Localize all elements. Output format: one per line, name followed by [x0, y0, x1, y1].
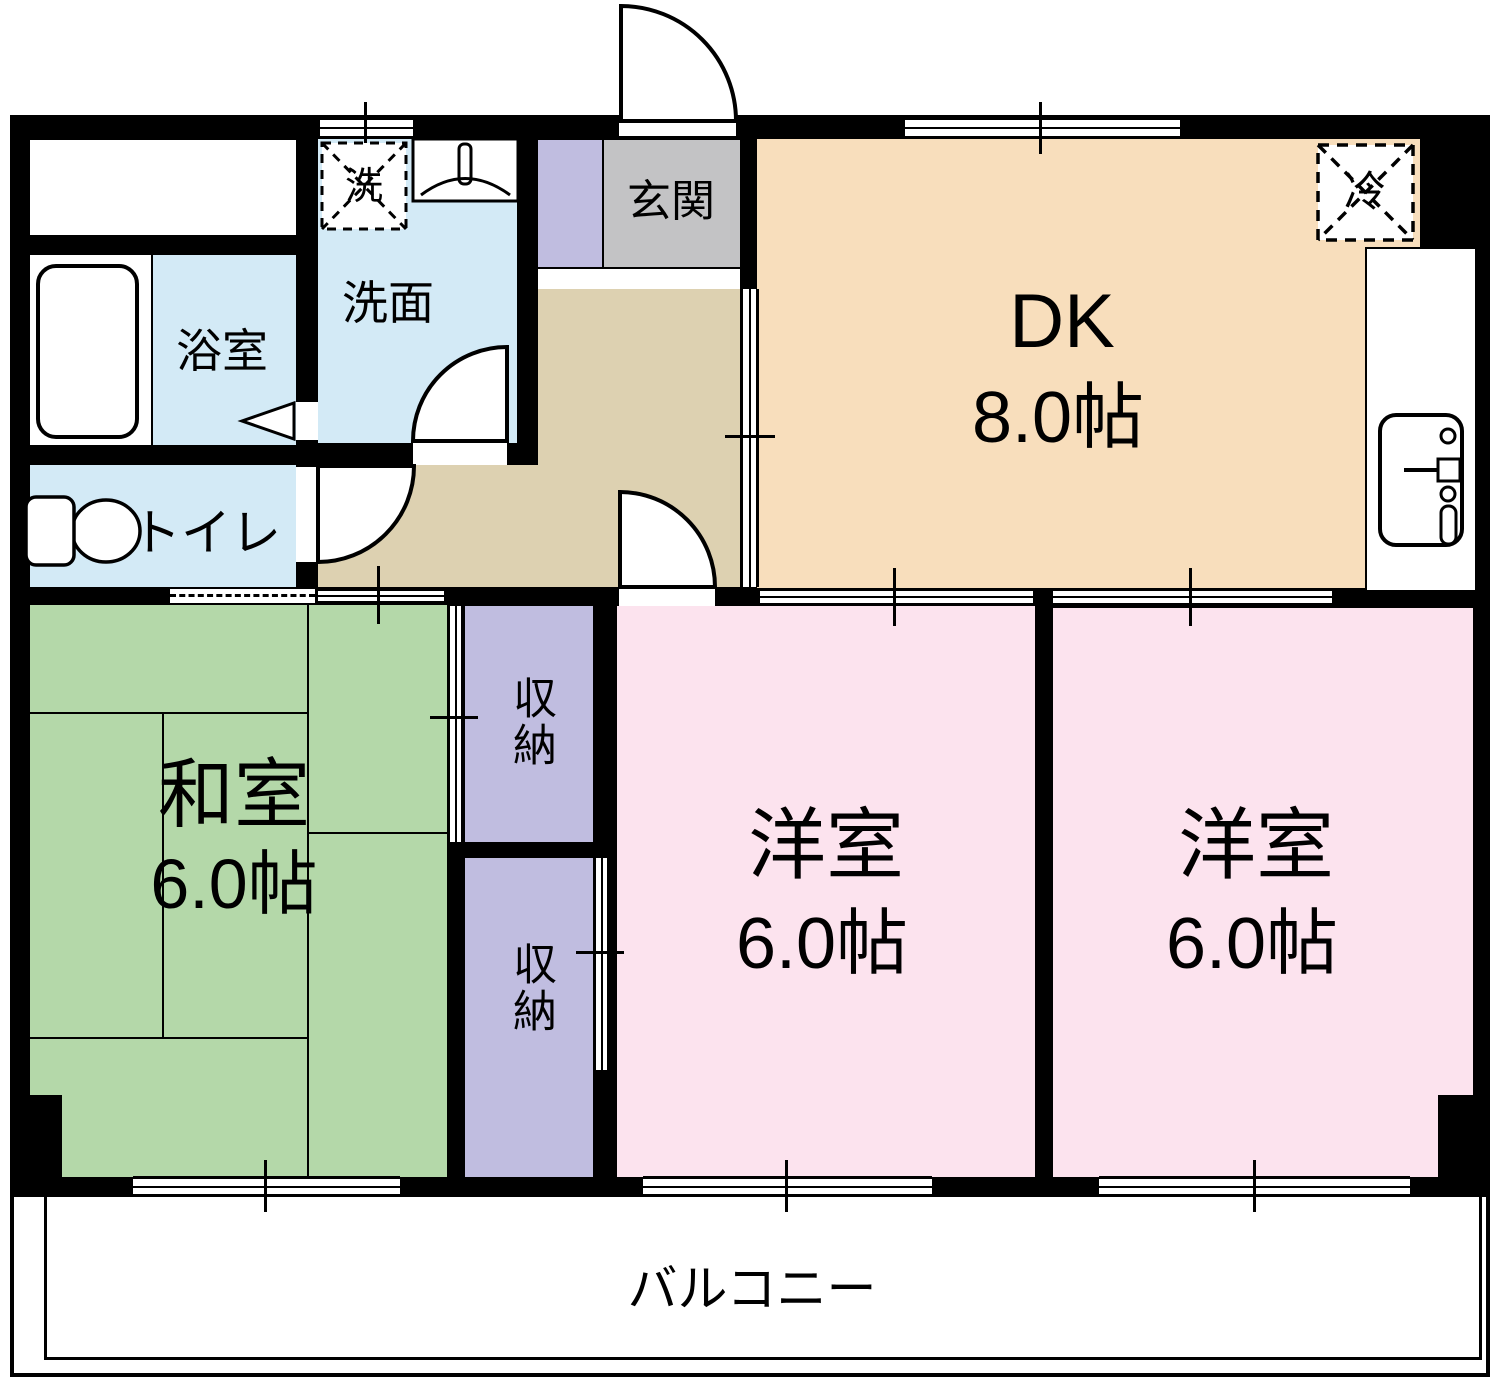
label-bath: 浴室 [176, 328, 268, 374]
label-dk-size: 8.0帖 [972, 382, 1144, 454]
floor-plan: 浴室 洗面 トイレ 玄関 洗 冷 DK 8.0帖 和室 6.0帖 洋室 6.0帖… [0, 0, 1500, 1380]
label-washer: 洗 [345, 168, 383, 206]
fixtures-layer [0, 0, 1500, 1380]
toilet-tank [26, 497, 74, 565]
label-western1: 洋室 [748, 806, 904, 884]
label-storage2: 収納 [508, 941, 552, 1035]
label-storage1: 収納 [508, 675, 552, 769]
label-fridge: 冷 [1344, 171, 1386, 213]
label-western2: 洋室 [1178, 806, 1334, 884]
kitchen-knob [1441, 429, 1455, 443]
kitchen-faucet-handle [1438, 459, 1460, 481]
label-genkan: 玄関 [627, 180, 715, 224]
label-senmen: 洗面 [342, 280, 434, 326]
label-washitsu-size: 6.0帖 [150, 849, 317, 919]
label-balcony: バルコニー [628, 1264, 877, 1314]
label-toilet: トイレ [131, 508, 281, 558]
label-washitsu: 和室 [158, 758, 310, 834]
western1-door-swing [620, 492, 715, 587]
label-dk: DK [1009, 284, 1115, 360]
toilet-door-swing [318, 466, 414, 562]
toilet-bowl [72, 500, 140, 562]
bathtub [38, 266, 137, 437]
label-western2-size: 6.0帖 [1166, 908, 1338, 980]
label-western1-size: 6.0帖 [736, 908, 908, 980]
kitchen-drain [1441, 506, 1456, 544]
senmen-door-swing [413, 347, 507, 441]
bath-door-triangle [242, 403, 294, 439]
kitchen-knob [1441, 487, 1455, 501]
entrance-door-swing [621, 6, 736, 121]
